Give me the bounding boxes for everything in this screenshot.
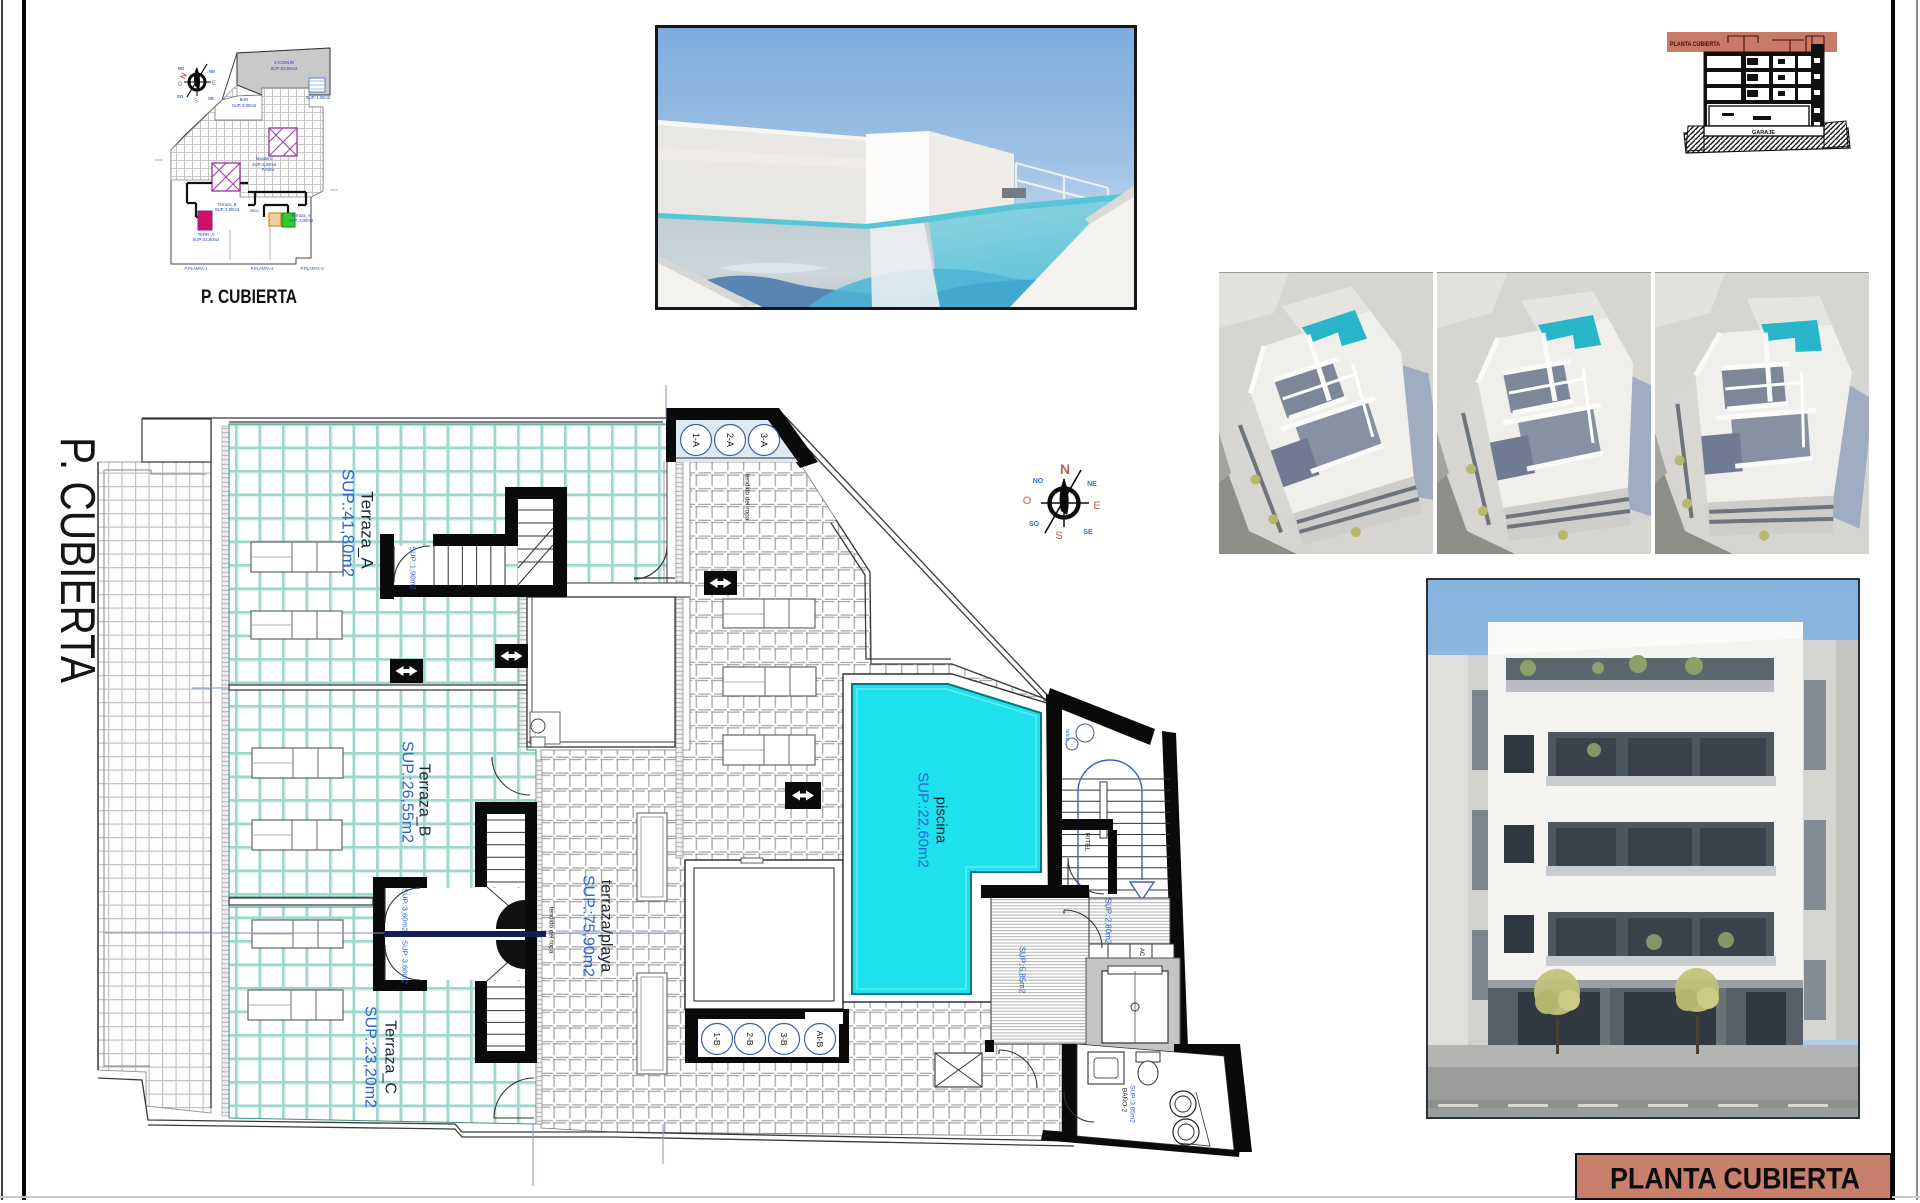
- svg-text:2-A: 2-A: [725, 433, 735, 447]
- svg-text:Atico: Atico: [249, 208, 259, 213]
- svg-text:terraza/playa: terraza/playa: [598, 880, 615, 973]
- svg-text:3-B: 3-B: [779, 1032, 789, 1046]
- svg-text:O: O: [178, 82, 183, 88]
- svg-text:SUP.:41,80m2: SUP.:41,80m2: [339, 469, 358, 577]
- svg-text:P.PLANTA-3: P.PLANTA-3: [300, 266, 324, 271]
- svg-text:GARAJE: GARAJE: [1752, 130, 1775, 136]
- svg-text:N: N: [178, 71, 189, 80]
- svg-text:E: E: [212, 81, 216, 87]
- svg-text:SUP.:3,60m2: SUP.:3,60m2: [401, 940, 410, 984]
- svg-text:SUP.:2,80m2: SUP.:2,80m2: [1104, 898, 1113, 945]
- svg-text:SUP.:63,55m2: SUP.:63,55m2: [271, 66, 298, 71]
- svg-text:1-A: 1-A: [691, 433, 701, 447]
- svg-text:telco: telco: [1064, 729, 1070, 741]
- svg-text:S: S: [194, 99, 198, 105]
- svg-text:NO: NO: [1033, 478, 1044, 485]
- svg-text:1-B: 1-B: [712, 1032, 722, 1046]
- svg-text:S: S: [1055, 530, 1062, 542]
- svg-text:BAÑO-2: BAÑO-2: [1121, 1088, 1130, 1113]
- svg-text:SUP.:9,00m2: SUP.:9,00m2: [232, 103, 257, 108]
- svg-text:3-A: 3-A: [759, 433, 769, 447]
- svg-text:SUP.:3,00m2: SUP.:3,00m2: [289, 218, 314, 223]
- svg-text:SUP.:1,90m2: SUP.:1,90m2: [409, 546, 418, 590]
- svg-text:AC: AC: [1138, 948, 1144, 957]
- svg-text:SUP.:3,85m2: SUP.:3,85m2: [1129, 1085, 1136, 1123]
- svg-text:Terraza_A: Terraza_A: [358, 491, 377, 569]
- svg-text:SUP.:4,00m2: SUP.:4,00m2: [306, 95, 331, 100]
- svg-text:At-B: At-B: [815, 1031, 825, 1048]
- svg-text:NE: NE: [209, 69, 215, 74]
- svg-text:O: O: [1023, 495, 1032, 507]
- svg-text:SE: SE: [1083, 529, 1093, 536]
- svg-text:N: N: [1060, 461, 1070, 477]
- svg-text:tendido del ropa: tendido del ropa: [744, 474, 751, 521]
- svg-text:PLANTA CUBIERTA: PLANTA CUBIERTA: [1610, 1163, 1860, 1196]
- svg-text:PLANTA CUBIERTA: PLANTA CUBIERTA: [1670, 41, 1720, 48]
- svg-text:SO: SO: [177, 94, 184, 99]
- svg-text:SO: SO: [1029, 521, 1040, 528]
- svg-text:piscina: piscina: [933, 797, 950, 844]
- svg-text:tendido del ropa: tendido del ropa: [548, 907, 555, 954]
- svg-text:SUP.:23,20m2: SUP.:23,20m2: [362, 1006, 379, 1108]
- svg-text:Terraza_C: Terraza_C: [382, 1020, 399, 1094]
- svg-text:2-COMUN: 2-COMUN: [274, 60, 294, 65]
- svg-text:SE: SE: [208, 96, 214, 101]
- svg-text:SUP.:75,90m2: SUP.:75,90m2: [580, 875, 597, 977]
- svg-text:P.PLANTA-2: P.PLANTA-2: [250, 266, 274, 271]
- svg-text:P. CUBIERTA: P. CUBIERTA: [201, 287, 297, 308]
- svg-text:P.Atico: P.Atico: [262, 167, 275, 172]
- svg-text:lavadero: lavadero: [256, 156, 273, 161]
- svg-text:NE: NE: [1087, 481, 1097, 488]
- svg-text:SUP.:3,60m2: SUP.:3,60m2: [401, 888, 410, 932]
- svg-text:SUP.:22,60m2: SUP.:22,60m2: [915, 772, 932, 868]
- svg-text:2-B: 2-B: [745, 1032, 755, 1046]
- svg-text:P.PLANTA-1: P.PLANTA-1: [184, 266, 208, 271]
- svg-text:Terraza_B: Terraza_B: [416, 764, 433, 837]
- svg-text:SUP.:5,85m2: SUP.:5,85m2: [1018, 947, 1027, 994]
- svg-text:BAR: BAR: [240, 97, 249, 102]
- svg-text:RITEL: RITEL: [1084, 833, 1091, 852]
- svg-text:SUP.:3,00m2: SUP.:3,00m2: [215, 207, 240, 212]
- svg-text:NO: NO: [178, 66, 185, 71]
- svg-text:SUP.:26,55m2: SUP.:26,55m2: [399, 741, 416, 843]
- svg-text:E: E: [1093, 500, 1100, 512]
- svg-text:SUP.:41,80m2: SUP.:41,80m2: [193, 237, 220, 242]
